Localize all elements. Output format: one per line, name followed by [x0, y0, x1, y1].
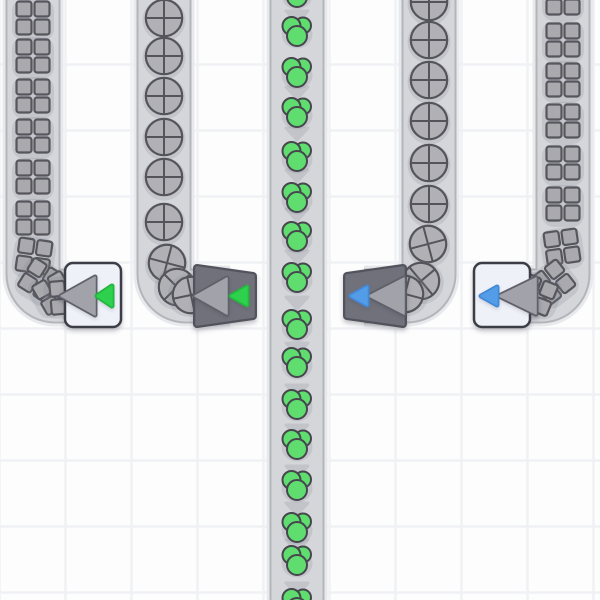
- square-pane: [547, 42, 562, 57]
- square-pane: [17, 98, 32, 113]
- item-square: [12, 158, 54, 200]
- square-pane: [565, 64, 580, 79]
- square-pane: [547, 165, 562, 180]
- item-circle: [408, 185, 451, 228]
- square-pane: [17, 20, 32, 35]
- square-pane: [547, 64, 562, 79]
- green-blob: [287, 319, 307, 339]
- item-square: [542, 144, 584, 186]
- square-pane: [565, 24, 580, 39]
- square-pane: [36, 240, 53, 257]
- item-green-cluster: [282, 263, 313, 295]
- item-green-cluster: [282, 17, 313, 49]
- square-pane: [35, 40, 50, 55]
- square-pane: [35, 202, 50, 217]
- item-square: [12, 37, 54, 79]
- green-blob: [287, 107, 307, 127]
- square-pane: [17, 220, 32, 235]
- green-blob: [287, 272, 307, 292]
- square-pane: [35, 179, 50, 194]
- square-pane: [543, 231, 560, 248]
- green-blob: [287, 357, 307, 377]
- item-square: [542, 185, 584, 227]
- square-pane: [547, 0, 562, 15]
- square-pane: [35, 58, 50, 73]
- square-pane: [17, 120, 32, 135]
- square-pane: [565, 206, 580, 221]
- tunnel-right-outer[interactable]: [474, 263, 536, 327]
- square-pane: [35, 120, 50, 135]
- item-square: [12, 77, 54, 119]
- tunnel-right-inner[interactable]: [347, 268, 404, 324]
- green-blob: [287, 231, 307, 251]
- green-blob: [287, 439, 307, 459]
- square-pane: [17, 40, 32, 55]
- item-green-cluster: [282, 390, 313, 422]
- square-pane: [565, 188, 580, 203]
- item-square: [12, 0, 54, 41]
- item-green-cluster: [282, 222, 313, 254]
- square-pane: [35, 20, 50, 35]
- tunnel-left-outer[interactable]: [61, 263, 121, 327]
- game-viewport[interactable]: [0, 0, 600, 600]
- square-pane: [565, 82, 580, 97]
- item-circle: [143, 158, 186, 201]
- square-pane: [547, 123, 562, 138]
- square-pane: [35, 80, 50, 95]
- square-pane: [564, 246, 581, 263]
- item-green-cluster: [282, 58, 313, 90]
- item-circle: [143, 77, 186, 120]
- item-circle: [408, 144, 451, 187]
- item-green-cluster: [282, 142, 313, 174]
- square-pane: [17, 58, 32, 73]
- square-pane: [35, 2, 50, 17]
- green-blob: [287, 26, 307, 46]
- green-blob: [287, 522, 307, 542]
- item-circle: [143, 0, 186, 42]
- square-pane: [565, 0, 580, 15]
- item-green-cluster: [282, 546, 313, 578]
- green-blob: [287, 67, 307, 87]
- square-pane: [17, 138, 32, 153]
- item-square: [542, 0, 584, 21]
- square-pane: [547, 188, 562, 203]
- item-circle: [143, 203, 186, 246]
- game-canvas[interactable]: [0, 0, 600, 600]
- square-pane: [17, 161, 32, 176]
- square-pane: [35, 161, 50, 176]
- item-circle: [408, 102, 451, 145]
- item-square: [542, 102, 584, 144]
- item-circle: [408, 21, 451, 64]
- square-pane: [35, 220, 50, 235]
- item-green-cluster: [282, 589, 313, 600]
- green-blob: [287, 151, 307, 171]
- square-pane: [547, 147, 562, 162]
- square-pane: [565, 147, 580, 162]
- square-pane: [35, 98, 50, 113]
- square-pane: [565, 105, 580, 120]
- item-square: [542, 21, 584, 63]
- item-green-cluster: [282, 430, 313, 462]
- square-pane: [565, 42, 580, 57]
- item-green-cluster: [282, 183, 313, 215]
- square-pane: [17, 80, 32, 95]
- square-pane: [547, 82, 562, 97]
- square-pane: [565, 165, 580, 180]
- item-circle: [408, 61, 451, 104]
- green-blob: [287, 555, 307, 575]
- square-pane: [547, 206, 562, 221]
- green-blob: [287, 399, 307, 419]
- item-circle: [143, 37, 186, 80]
- square-pane: [547, 105, 562, 120]
- square-pane: [18, 237, 35, 254]
- item-green-cluster: [282, 513, 313, 545]
- item-circle: [143, 118, 186, 161]
- square-pane: [565, 123, 580, 138]
- square-pane: [547, 24, 562, 39]
- item-square: [12, 117, 54, 159]
- square-pane: [17, 179, 32, 194]
- square-pane: [35, 138, 50, 153]
- tunnel-left-inner[interactable]: [195, 268, 253, 324]
- item-green-cluster: [282, 471, 313, 503]
- item-green-cluster: [282, 348, 313, 380]
- square-pane: [17, 202, 32, 217]
- green-blob: [287, 192, 307, 212]
- item-green-cluster: [282, 310, 313, 342]
- item-square: [542, 61, 584, 103]
- item-green-cluster: [282, 98, 313, 130]
- item-square: [12, 199, 54, 241]
- square-pane: [561, 228, 578, 245]
- square-pane: [17, 2, 32, 17]
- green-blob: [287, 480, 307, 500]
